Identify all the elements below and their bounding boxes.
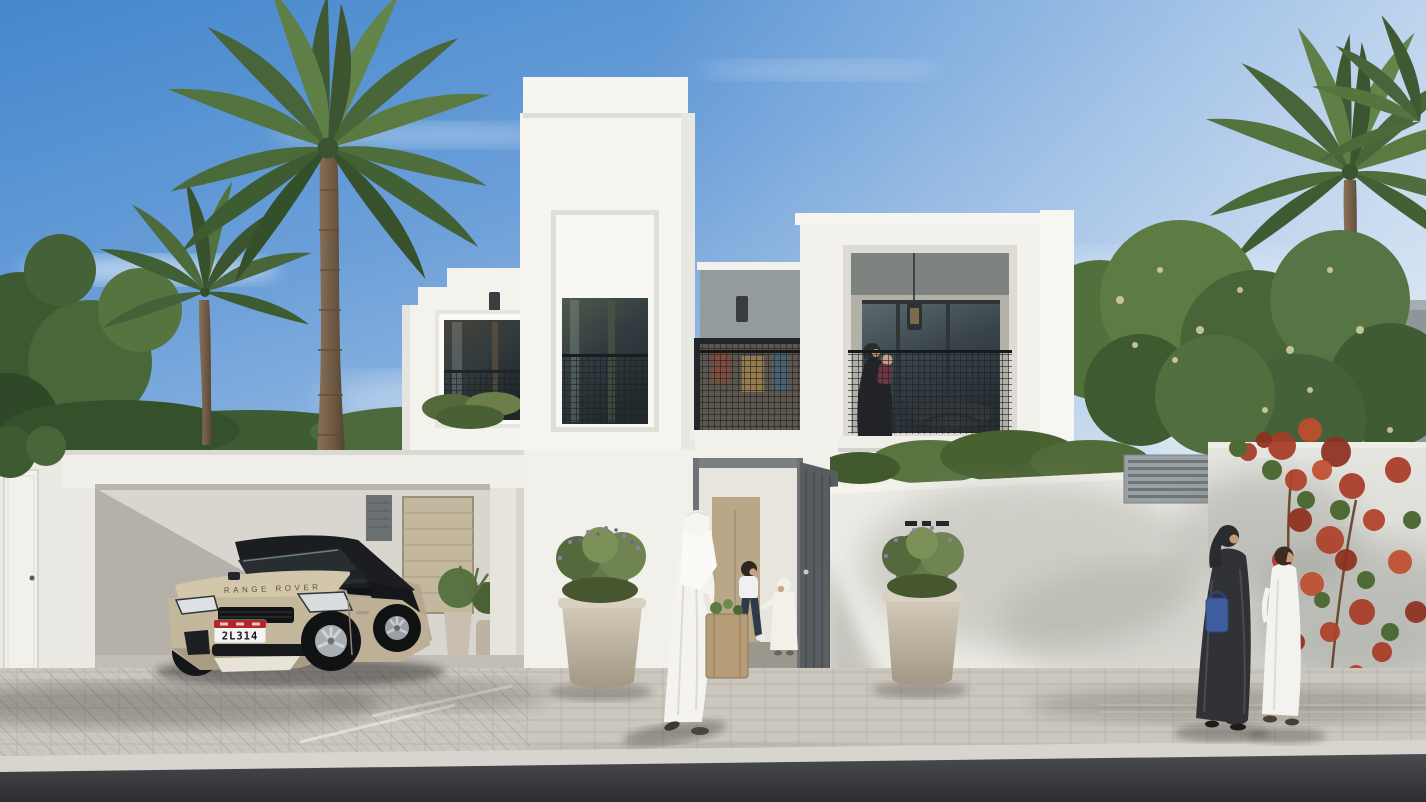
left-wing-window — [422, 310, 530, 429]
gate-header — [693, 458, 803, 468]
wheel-rear — [373, 604, 421, 652]
house-number-dashes — [905, 521, 949, 526]
scene-canvas: 007 — [0, 0, 1426, 802]
door-handle — [30, 576, 35, 581]
mirror-right — [350, 570, 365, 579]
balcony-railing — [848, 353, 1012, 434]
tower-window — [551, 210, 659, 432]
grocery-bag — [706, 596, 748, 678]
carport-canopy — [62, 450, 524, 488]
mirror-left — [228, 572, 240, 580]
wheel-front — [301, 611, 361, 671]
villa-rendering: 007 — [0, 0, 1426, 802]
license-plate: 2L314 — [214, 620, 266, 643]
tower-window-railing — [562, 357, 648, 424]
ac-unit — [366, 495, 392, 541]
plate-number: 2L314 — [222, 631, 259, 643]
balcony-recess — [838, 245, 1020, 452]
cloud — [700, 60, 940, 80]
door-handle — [356, 611, 369, 615]
juliet-balcony — [690, 338, 810, 440]
juliet-railing — [700, 344, 800, 430]
headlight-left — [176, 596, 218, 614]
recessed-gray-wall — [700, 270, 800, 346]
pedestrian-door — [4, 470, 38, 680]
right-return-wall — [1040, 210, 1074, 472]
skid-plate — [214, 656, 300, 672]
handbag-blue — [1206, 592, 1228, 632]
wall-lamp-center — [736, 296, 748, 322]
